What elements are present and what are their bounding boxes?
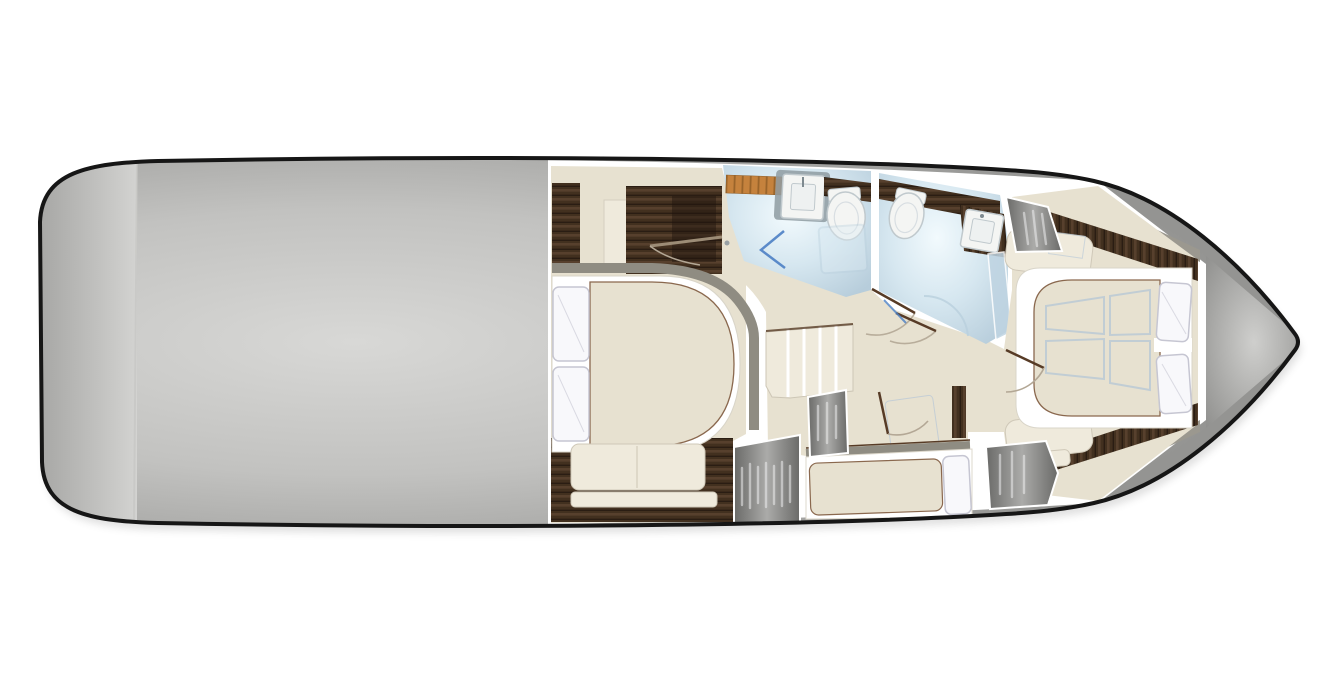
guest-cabin-mid (551, 166, 754, 523)
guest-bed-mattress (590, 282, 734, 446)
cabinet-inset (672, 196, 716, 262)
shower-enclosure (818, 224, 867, 273)
berth-mattress (809, 459, 943, 516)
sofa-seat (571, 444, 705, 490)
sink-faucet (980, 214, 984, 218)
sink-bowl (969, 218, 994, 243)
stairs-base (766, 325, 853, 398)
wardrobe-master (986, 441, 1058, 509)
hanger-icons (742, 462, 790, 508)
floorplan-canvas (0, 0, 1336, 682)
guest-bed (552, 276, 740, 452)
sofa-base (571, 492, 717, 507)
door-post-wood (952, 386, 966, 438)
closet-companionway (808, 390, 848, 457)
berth-pillow (943, 455, 972, 514)
nightstand-wood (552, 183, 580, 267)
stern-band (38, 152, 137, 542)
yacht-floorplan (0, 0, 1336, 682)
master-bed (1016, 268, 1192, 428)
guest-sofa (571, 444, 717, 507)
master-bed-mattress (1034, 280, 1160, 416)
wardrobe-mid (734, 435, 800, 524)
door-hinge (725, 241, 730, 246)
stern-deck (38, 152, 137, 542)
teak-shower-grate (726, 175, 783, 195)
sink-bowl (790, 183, 815, 210)
wardrobe-body (986, 441, 1058, 509)
stairs (766, 324, 853, 398)
